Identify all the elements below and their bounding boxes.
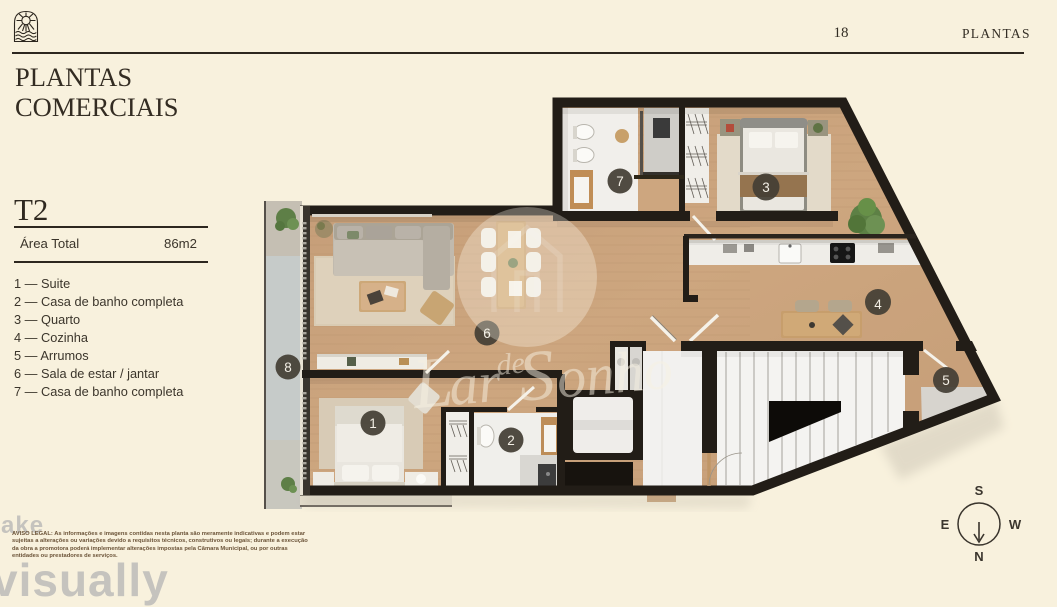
svg-text:S: S: [975, 483, 984, 498]
svg-text:1: 1: [369, 416, 377, 431]
svg-text:2: 2: [507, 433, 515, 448]
svg-text:E: E: [941, 517, 950, 532]
svg-text:W: W: [1009, 517, 1022, 532]
svg-text:7: 7: [616, 174, 624, 189]
svg-text:8: 8: [284, 360, 292, 375]
svg-text:onho: onho: [554, 336, 675, 411]
svg-text:5: 5: [942, 373, 950, 388]
svg-text:S: S: [515, 334, 558, 417]
svg-text:N: N: [974, 549, 983, 564]
svg-text:4: 4: [874, 297, 882, 312]
svg-text:3: 3: [762, 180, 770, 195]
